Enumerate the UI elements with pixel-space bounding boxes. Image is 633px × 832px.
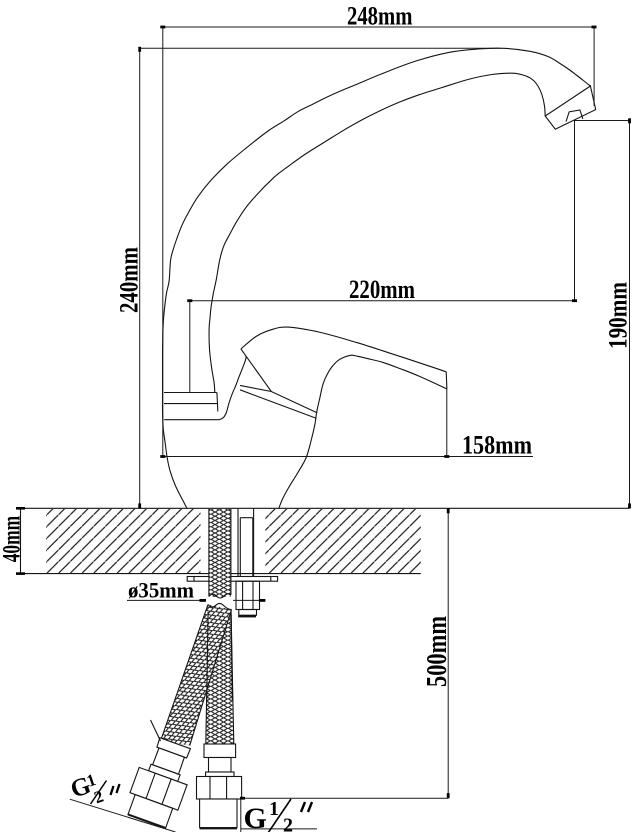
svg-text:500mm: 500mm bbox=[422, 616, 453, 687]
svg-text:2: 2 bbox=[283, 815, 293, 832]
svg-text:1: 1 bbox=[269, 798, 279, 820]
svg-text:2: 2 bbox=[92, 787, 106, 808]
svg-text:190mm: 190mm bbox=[604, 282, 633, 349]
svg-text:248mm: 248mm bbox=[347, 2, 413, 31]
svg-text:40mm: 40mm bbox=[0, 516, 26, 563]
svg-text:158mm: 158mm bbox=[462, 431, 532, 460]
svg-text:ø35mm: ø35mm bbox=[128, 578, 194, 603]
svg-text:G: G bbox=[244, 802, 267, 832]
svg-text:220mm: 220mm bbox=[349, 275, 415, 304]
svg-text:240mm: 240mm bbox=[115, 247, 144, 313]
